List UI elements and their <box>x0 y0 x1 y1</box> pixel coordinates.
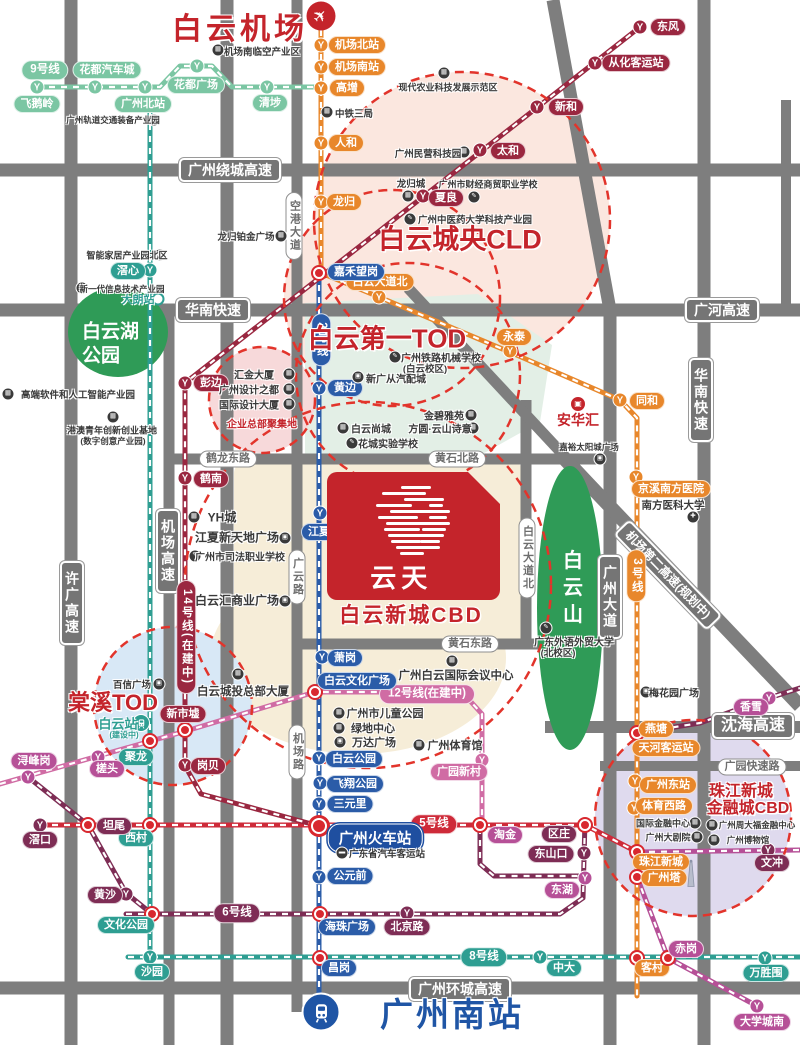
metro-station-icon <box>372 290 387 305</box>
station-东风: 东风 <box>650 18 686 36</box>
road-label-广云路: 广云路 <box>289 550 306 605</box>
landmark-白云城投总部大厦: 白云城投总部大厦 <box>197 683 289 699</box>
landmark-广州民营科技园: 广州民营科技园 <box>395 146 462 160</box>
metro-station-icon <box>314 136 329 151</box>
metro-station-icon <box>530 100 545 115</box>
building-icon: ▦ <box>232 668 245 681</box>
station-滘口: 滘口 <box>22 831 58 849</box>
interchange-icon <box>577 817 593 833</box>
station-体育西路: 体育西路 <box>635 797 693 815</box>
landmark-广州中医药大学科技产业园: 广州中医药大学科技产业园 <box>418 212 532 226</box>
station-浔峰岗: 浔峰岗 <box>11 752 58 770</box>
title-白云机场: 白云机场 <box>172 4 308 48</box>
building-icon: ▦ <box>283 368 296 381</box>
interchange-icon <box>311 265 327 281</box>
landmark-广东省汽车客运站: 广东省汽车客运站 <box>349 846 425 860</box>
landmark-广州大剧院: 广州大剧院 <box>645 831 690 844</box>
title-金融城CBD: 金融城CBD <box>707 794 790 818</box>
landmark-国际设计大厦: 国际设计大厦 <box>219 397 279 412</box>
landmark-龙归铂金广场: 龙归铂金广场 <box>217 229 274 243</box>
station-区庄: 区庄 <box>541 825 577 843</box>
guangzhou-transit-map: 白云湖公园白云山广州绕城高速华南快速广河高速华南快速许广高速机场高速广州大道沈海… <box>0 0 800 1045</box>
metro-station-icon <box>533 950 548 965</box>
station-槎头: 槎头 <box>89 760 125 778</box>
metro-station-icon <box>30 80 45 95</box>
building-icon: ▦ <box>275 230 288 243</box>
building-icon: ▦ <box>438 67 451 80</box>
landmark-梅花园广场: 梅花园广场 <box>649 685 699 700</box>
metro-station-icon <box>473 143 488 158</box>
station-广州塔: 广州塔 <box>641 869 688 887</box>
landmark-YH城: YH城 <box>208 509 237 526</box>
landmark-新广从汽配城: 新广从汽配城 <box>366 371 426 386</box>
landmark-南方医科大学: 南方医科大学 <box>642 498 705 513</box>
road-label-白云大道北: 白云大道北 <box>519 518 536 599</box>
interchange-icon <box>80 817 96 833</box>
road-label-许广高速: 许广高速 <box>60 561 84 645</box>
road-label-沈海高速: 沈海高速 <box>712 713 794 739</box>
road-label-机场路: 机场路 <box>289 725 306 780</box>
south-station-icon <box>302 993 341 1032</box>
station-广园新村: 广园新村 <box>430 763 488 781</box>
station-同和: 同和 <box>629 392 665 410</box>
interchange-icon <box>472 817 488 833</box>
landmark-百信广场: 百信广场 <box>113 677 151 691</box>
station-花都广场: 花都广场 <box>167 76 225 94</box>
metro-station-icon <box>312 870 327 885</box>
landmark-广州设计之都: 广州设计之都 <box>219 382 279 397</box>
station-三元里: 三元里 <box>327 795 374 813</box>
landmark-广州白云国际会议中心: 广州白云国际会议中心 <box>399 667 514 683</box>
station-永泰: 永泰 <box>496 328 532 346</box>
metro-station-icon <box>314 81 329 96</box>
landmark-国际金融中心: 国际金融中心 <box>636 817 690 830</box>
landmark-高端软件和人工智能产业园: 高端软件和人工智能产业园 <box>21 387 135 401</box>
landmark-智能家居产业园北区: 智能家居产业园北区 <box>86 249 167 262</box>
road-label-广州大道: 广州大道 <box>598 555 622 639</box>
building-icon: ▦ <box>446 655 459 668</box>
line-badge-8号线: 8号线 <box>460 947 507 967</box>
landmark-广州市司法职业学校: 广州市司法职业学校 <box>195 549 285 564</box>
station-广州东站: 广州东站 <box>639 776 697 794</box>
metro-station-icon <box>88 80 103 95</box>
line-badge-9号线: 9号线 <box>21 60 68 80</box>
building-icon: ▦ <box>402 190 415 203</box>
station-夏良: 夏良 <box>428 189 464 207</box>
station-万胜围: 万胜围 <box>743 964 790 982</box>
road-label-华南快速: 华南快速 <box>689 358 713 442</box>
landmark-中铁三局: 中铁三局 <box>335 106 373 120</box>
station-高增: 高增 <box>329 79 365 97</box>
building-icon: ▦ <box>333 707 346 720</box>
landmark-企业总部聚集地: 企业总部聚集地 <box>227 416 297 431</box>
landmark-广州体育馆: 广州体育馆 <box>428 737 483 753</box>
airport-icon: ✈ <box>307 2 336 31</box>
building-icon: ▦ <box>333 722 346 735</box>
landmark-嘉裕太阳城广场: 嘉裕太阳城广场 <box>559 441 619 453</box>
interchange-icon <box>142 733 158 749</box>
line-badge-14号线(在建中): 14号线(在建中) <box>176 580 196 694</box>
station-京溪南方医院: 京溪南方医院 <box>631 480 711 498</box>
yuntian-logo-block: 云天新地 <box>327 472 500 600</box>
landmark-广州轨道交通装备产业园: 广州轨道交通装备产业园 <box>66 114 160 126</box>
metro-station-icon <box>633 20 648 35</box>
station-白云公园: 白云公园 <box>325 750 383 768</box>
interchange-icon <box>177 722 193 738</box>
station-燕塘: 燕塘 <box>638 720 674 738</box>
station-嘉禾望岗: 嘉禾望岗 <box>327 263 385 281</box>
station-昌岗: 昌岗 <box>321 959 357 977</box>
mall-icon: ▣ <box>334 736 347 749</box>
metro-station-icon <box>314 60 329 75</box>
landmark-白云尚城: 白云尚城 <box>351 421 391 436</box>
road-label-广州绕城高速: 广州绕城高速 <box>179 158 281 182</box>
school-icon: ✎ <box>389 351 402 364</box>
station-白云文化广场: 白云文化广场 <box>317 672 397 690</box>
station-公元前: 公元前 <box>327 867 374 885</box>
station-太和: 太和 <box>490 142 526 160</box>
canton-tower-icon <box>687 860 696 893</box>
mall-icon: ▣ <box>153 678 166 691</box>
station-淘金: 淘金 <box>487 826 523 844</box>
landmark-sub-广东外语外贸大学: (北校区) <box>541 645 576 659</box>
metro-station-icon <box>588 56 603 71</box>
metro-station-icon <box>178 376 193 391</box>
station-人和: 人和 <box>328 134 364 152</box>
landmark-广州市财经商贸职业学校: 广州市财经商贸职业学校 <box>438 178 537 191</box>
metro-station-icon <box>312 797 327 812</box>
building-icon: ▦ <box>337 422 350 435</box>
station-文化公园: 文化公园 <box>97 916 155 934</box>
building-icon: ▦ <box>188 511 201 524</box>
landmark-广州周大福金融中心: 广州周大福金融中心 <box>719 819 796 831</box>
school-icon: ✎ <box>404 213 417 226</box>
station-鹤南: 鹤南 <box>193 470 229 488</box>
line-badge-6号线: 6号线 <box>213 903 260 923</box>
landmark-广州市儿童公园: 广州市儿童公园 <box>347 705 424 721</box>
station-新市墟: 新市墟 <box>160 705 207 723</box>
metro-station-icon <box>178 471 193 486</box>
landmark-现代农业科技发展示范区: 现代农业科技发展示范区 <box>398 81 497 94</box>
mall-icon: ▣ <box>594 453 607 466</box>
station-海珠广场: 海珠广场 <box>318 918 376 936</box>
school-icon: ✎ <box>346 437 359 450</box>
building-icon: ▦ <box>2 388 15 401</box>
station-飞翔公园: 飞翔公园 <box>326 775 384 793</box>
station-东山口: 东山口 <box>528 845 575 863</box>
metro-station-icon <box>312 381 327 396</box>
park-label: 白云山 <box>554 542 589 639</box>
road-label-黄石东路: 黄石东路 <box>441 636 499 653</box>
station-沙园: 沙园 <box>134 963 170 981</box>
landmark-广州博物馆: 广州博物馆 <box>727 834 770 846</box>
mall-icon: ▣ <box>279 595 292 608</box>
bus-icon: ▬ <box>336 847 349 860</box>
station-广州北站: 广州北站 <box>114 95 172 113</box>
park-label: 公园 <box>82 341 120 368</box>
landmark-新一代信息技术产业园: 新一代信息技术产业园 <box>79 283 164 295</box>
station-龙归: 龙归 <box>326 193 362 211</box>
station-清埗: 清埗 <box>252 94 288 112</box>
title-白云新城CBD: 白云新城CBD <box>339 599 483 629</box>
station-文冲: 文冲 <box>754 854 790 872</box>
line-badge-3号线: 3号线 <box>626 549 646 602</box>
building-icon: ▦ <box>691 831 704 844</box>
station-飞鹅岭: 飞鹅岭 <box>14 95 61 113</box>
landmark-万达广场: 万达广场 <box>352 734 396 750</box>
road-label-广园快速路: 广园快速路 <box>718 759 787 776</box>
metro-station-icon <box>750 999 765 1014</box>
metro-station-icon <box>138 80 153 95</box>
road-label-广河高速: 广河高速 <box>685 298 759 322</box>
station-滘心: 滘心 <box>110 262 146 280</box>
station-坦尾: 坦尾 <box>96 817 132 835</box>
station-机场北站: 机场北站 <box>328 36 386 54</box>
metro-station-icon <box>613 393 628 408</box>
station-新和: 新和 <box>548 98 584 116</box>
station-中大: 中大 <box>546 959 582 977</box>
road-label-华南快速: 华南快速 <box>176 298 250 322</box>
building-icon: ▦ <box>212 44 225 57</box>
station-香雪: 香雪 <box>733 698 769 716</box>
building-icon: ▦ <box>283 383 296 396</box>
building-icon: ▦ <box>321 106 334 119</box>
landmark-sub-港澳青年创新创业基地: (数字创意产业园) <box>80 435 145 447</box>
landmark-龙归城: 龙归城 <box>397 176 426 190</box>
building-icon: ▦ <box>413 739 426 752</box>
road-label-机场高速: 机场高速 <box>156 509 180 593</box>
station-机场南站: 机场南站 <box>328 58 386 76</box>
landmark-安华汇: 安华汇 <box>557 410 599 430</box>
landmark-机场南临空产业区: 机场南临空产业区 <box>224 44 300 58</box>
landmark-白云汇商业广场: 白云汇商业广场 <box>195 592 279 609</box>
landmark-汇金大厦: 汇金大厦 <box>234 367 274 382</box>
metro-station-icon <box>21 770 36 785</box>
interchange-icon <box>308 815 330 837</box>
station-sub-label: (建设中) <box>109 730 138 741</box>
station-萧岗: 萧岗 <box>327 649 363 667</box>
metro-station-icon <box>577 846 592 861</box>
metro-station-icon <box>313 506 328 521</box>
station-大学城南: 大学城南 <box>733 1013 791 1031</box>
landmark-花城实验学校: 花城实验学校 <box>358 436 418 451</box>
mall-icon: ▣ <box>279 532 292 545</box>
metro-station-icon <box>314 38 329 53</box>
station-赤岗: 赤岗 <box>668 940 704 958</box>
building-icon: ▦ <box>283 398 296 411</box>
building-icon: ▦ <box>689 817 702 830</box>
mall-icon: ▣ <box>352 371 365 384</box>
road-label-鹤龙东路: 鹤龙东路 <box>199 451 257 468</box>
road-label-黄石北路: 黄石北路 <box>428 451 486 468</box>
station-花都汽车城: 花都汽车城 <box>73 61 142 79</box>
metro-station-icon <box>260 80 275 95</box>
metro-station-icon <box>578 871 593 886</box>
title-广州南站: 广州南站 <box>380 988 524 1036</box>
station-天河客运站: 天河客运站 <box>632 739 701 757</box>
station-北京路: 北京路 <box>384 918 431 936</box>
station-从化客运站: 从化客运站 <box>602 54 671 72</box>
building-icon: ▦ <box>706 819 719 832</box>
park-label: 白云湖 <box>82 317 139 344</box>
road-label-空港大道: 空港大道 <box>286 192 303 260</box>
metro-station-icon <box>190 59 205 74</box>
school-icon: ✎ <box>468 191 481 204</box>
building-icon: ▦ <box>107 411 120 424</box>
station-黄沙: 黄沙 <box>87 886 123 904</box>
landmark-方圆·云山诗意: 方圆·云山诗意 <box>408 421 471 436</box>
building-icon: ▦ <box>708 834 721 847</box>
landmark-江夏新天地广场: 江夏新天地广场 <box>195 529 279 546</box>
station-岗贝: 岗贝 <box>190 757 226 775</box>
station-东湖: 东湖 <box>544 881 580 899</box>
